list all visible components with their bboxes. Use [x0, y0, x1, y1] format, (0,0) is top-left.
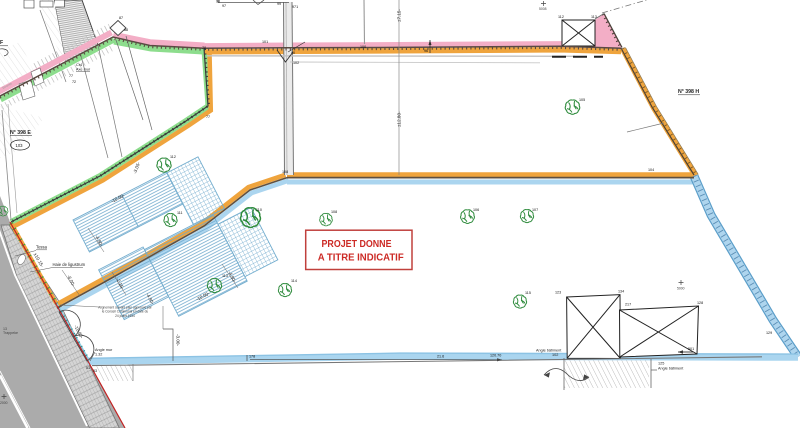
svg-text:Axe mur: Axe mur [76, 68, 91, 72]
svg-text:N° 398 H: N° 398 H [678, 89, 699, 95]
svg-text:98: 98 [216, 0, 220, 4]
svg-text:Trappeke: Trappeke [3, 331, 18, 335]
svg-text:90: 90 [291, 51, 295, 55]
svg-text:971: 971 [292, 5, 298, 9]
svg-text:102: 102 [552, 353, 558, 357]
svg-text:112: 112 [170, 155, 176, 159]
svg-text:113: 113 [591, 15, 597, 19]
svg-text:21.6: 21.6 [437, 355, 444, 359]
svg-text:99: 99 [277, 2, 281, 6]
svg-text:5000: 5000 [677, 287, 685, 291]
svg-text:129: 129 [766, 331, 772, 335]
svg-text:113: 113 [222, 274, 228, 278]
svg-text:134: 134 [618, 290, 624, 294]
svg-text:102: 102 [293, 61, 299, 65]
svg-text:F: F [0, 40, 3, 46]
svg-text:±12.80-: ±12.80- [397, 111, 402, 127]
svg-text:97: 97 [222, 4, 226, 8]
svg-text:112: 112 [558, 15, 564, 19]
svg-text:Angle bâtiment: Angle bâtiment [536, 349, 562, 353]
svg-text:88: 88 [124, 28, 128, 32]
svg-text:108: 108 [282, 170, 288, 174]
svg-text:115: 115 [525, 291, 531, 295]
svg-text:87: 87 [119, 16, 123, 20]
svg-text:107: 107 [532, 208, 538, 212]
svg-text:N° 398 E: N° 398 E [10, 130, 31, 136]
svg-text:104: 104 [648, 168, 654, 172]
svg-text:Angle bâtiment: Angle bâtiment [658, 367, 684, 371]
svg-text:PROJET DONNE: PROJET DONNE [322, 239, 392, 250]
svg-text:96: 96 [424, 49, 428, 53]
svg-text:53: 53 [93, 369, 97, 373]
svg-text:24 juillet 1934: 24 juillet 1934 [115, 314, 135, 318]
svg-text:±7.15-: ±7.15- [397, 9, 402, 22]
svg-text:501: 501 [688, 347, 694, 351]
svg-text:105: 105 [579, 98, 585, 102]
svg-text:120.70: 120.70 [490, 354, 501, 358]
svg-text:100: 100 [360, 45, 366, 49]
svg-text:A TITRE INDICATIF: A TITRE INDICATIF [318, 252, 404, 263]
svg-text:77: 77 [206, 115, 210, 119]
svg-text:-3.00-: -3.00- [176, 334, 181, 346]
svg-text:217: 217 [625, 303, 631, 307]
svg-text:78: 78 [202, 46, 206, 50]
svg-text:77: 77 [69, 74, 73, 78]
svg-text:5008: 5008 [539, 7, 547, 11]
svg-text:110: 110 [256, 208, 262, 212]
svg-text:106: 106 [473, 208, 479, 212]
svg-text:178: 178 [249, 355, 255, 359]
svg-text:114: 114 [291, 279, 297, 283]
svg-text:51: 51 [86, 366, 90, 370]
svg-text:Tessa: Tessa [36, 245, 48, 250]
svg-text:123: 123 [555, 291, 561, 295]
svg-text:2000: 2000 [0, 401, 8, 405]
svg-text:111: 111 [177, 211, 183, 215]
svg-text:108: 108 [331, 210, 337, 214]
svg-text:Haie de ligustrum: Haie de ligustrum [53, 262, 86, 267]
svg-text:101: 101 [262, 40, 268, 44]
svg-text:Angle mur: Angle mur [95, 348, 113, 352]
svg-text:72: 72 [72, 80, 76, 84]
svg-text:125: 125 [658, 362, 664, 366]
svg-text:1.32: 1.32 [95, 353, 102, 357]
svg-text:Cr4: Cr4 [76, 63, 82, 67]
svg-text:103: 103 [16, 143, 24, 148]
svg-text:128: 128 [697, 301, 703, 305]
